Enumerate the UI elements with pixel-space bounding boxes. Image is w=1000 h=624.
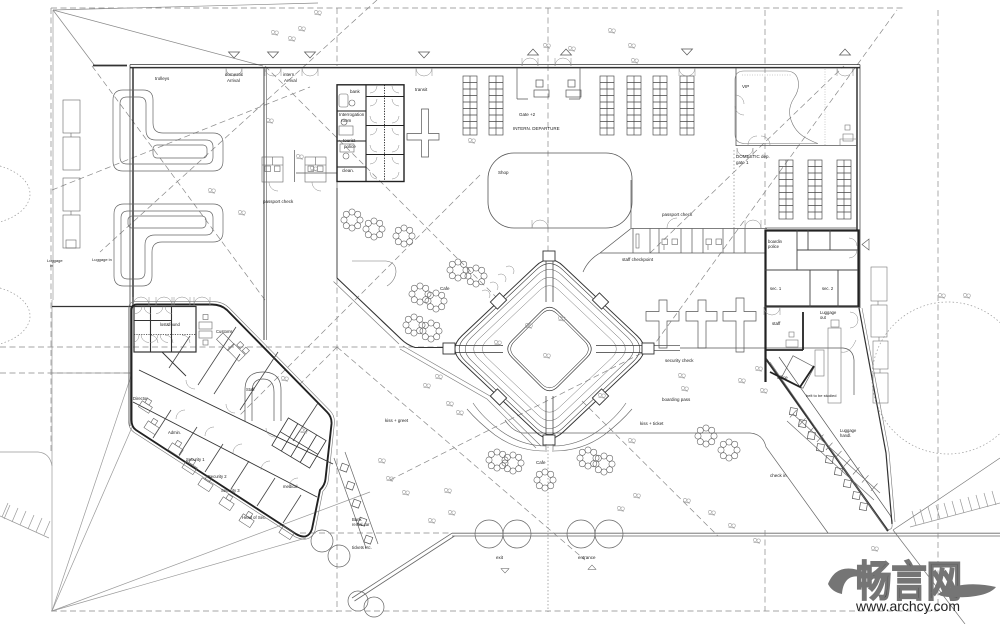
svg-text:out: out: [820, 315, 827, 320]
svg-text:Staff: Staff: [246, 387, 255, 392]
svg-text:in: in: [50, 263, 53, 268]
svg-text:VIP: VIP: [742, 84, 749, 89]
svg-text:exit: exit: [496, 555, 504, 560]
svg-text:passport check: passport check: [662, 212, 693, 217]
svg-text:entrance: entrance: [578, 555, 596, 560]
svg-text:Security 1: Security 1: [186, 457, 205, 462]
svg-text:Arrival: Arrival: [227, 78, 240, 83]
svg-text:Cafe: Cafe: [440, 286, 450, 291]
svg-text:trolleys: trolleys: [155, 76, 170, 81]
svg-text:handl.: handl.: [840, 433, 851, 438]
svg-text:Interrogation: Interrogation: [339, 112, 365, 117]
svg-text:gate 1: gate 1: [736, 160, 749, 165]
svg-text:boarding pass: boarding pass: [662, 397, 691, 402]
svg-text:intern.: intern.: [283, 72, 296, 77]
svg-text:Customs: Customs: [216, 329, 233, 334]
svg-text:Luggage in: Luggage in: [92, 257, 112, 262]
svg-text:www.archcy.com: www.archcy.com: [855, 598, 960, 614]
svg-text:security check: security check: [665, 358, 694, 363]
svg-text:staff checkpoint: staff checkpoint: [622, 257, 654, 262]
svg-text:police: police: [344, 144, 356, 149]
svg-text:rental car: rental car: [352, 522, 370, 527]
svg-text:INTERN. DEPARTURE: INTERN. DEPARTURE: [513, 126, 560, 131]
svg-text:Security 3: Security 3: [221, 488, 240, 493]
svg-text:room: room: [341, 118, 352, 123]
svg-text:kiss + ticket: kiss + ticket: [640, 421, 664, 426]
svg-text:transit: transit: [415, 87, 428, 92]
svg-text:tickets etc.: tickets etc.: [352, 545, 372, 550]
svg-text:Cafe: Cafe: [536, 460, 546, 465]
svg-text:Head of Sec.: Head of Sec.: [242, 515, 266, 520]
svg-text:tourist: tourist: [343, 138, 356, 143]
svg-text:DOMESTIC dep.: DOMESTIC dep.: [736, 154, 770, 159]
svg-text:Shop: Shop: [498, 170, 509, 175]
svg-text:bank: bank: [350, 89, 361, 94]
svg-text:belt to be studied: belt to be studied: [806, 393, 836, 398]
svg-text:clean.: clean.: [342, 168, 354, 173]
svg-text:police: police: [768, 244, 780, 249]
svg-text:Admin.: Admin.: [168, 430, 181, 435]
svg-text:Arrival: Arrival: [284, 78, 297, 83]
svg-text:staff: staff: [772, 321, 781, 326]
svg-text:domestic: domestic: [225, 72, 244, 77]
svg-text:lost&found: lost&found: [160, 322, 180, 327]
svg-text:medical: medical: [283, 484, 297, 489]
svg-text:passport check: passport check: [263, 199, 294, 204]
svg-text:Security 2: Security 2: [208, 474, 227, 479]
svg-text:office: office: [777, 375, 788, 380]
svg-text:sec. 1: sec. 1: [770, 286, 782, 291]
svg-text:Gate +2: Gate +2: [519, 112, 536, 117]
svg-text:sec. 2: sec. 2: [822, 286, 834, 291]
svg-text:check in: check in: [770, 473, 787, 478]
svg-text:Director: Director: [133, 396, 148, 401]
svg-text:kiss + greet: kiss + greet: [385, 418, 409, 423]
